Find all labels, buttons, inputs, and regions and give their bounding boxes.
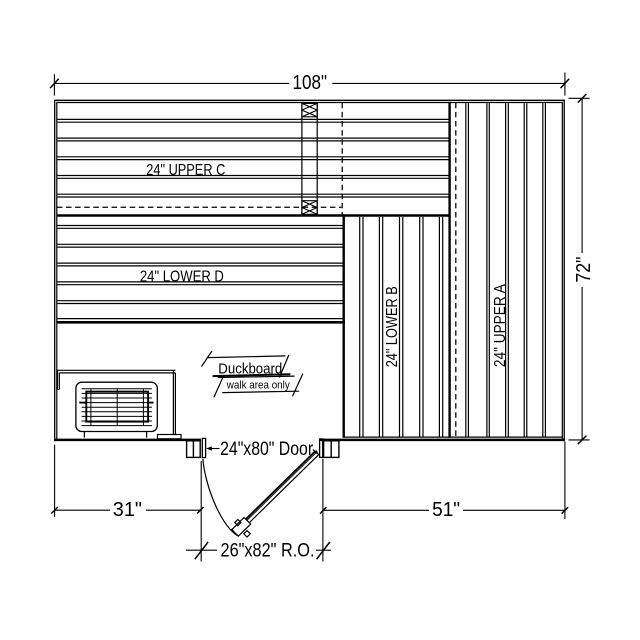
svg-text:72": 72" xyxy=(573,257,595,283)
svg-text:108": 108" xyxy=(293,72,328,94)
svg-text:26"x82" R.O.: 26"x82" R.O. xyxy=(221,540,315,561)
svg-text:24" UPPER C: 24" UPPER C xyxy=(146,162,225,179)
svg-text:24"x80" Door: 24"x80" Door xyxy=(220,439,314,460)
svg-text:Duckboard: Duckboard xyxy=(218,361,282,378)
svg-text:24" LOWER D: 24" LOWER D xyxy=(140,269,224,286)
svg-text:walk area only: walk area only xyxy=(226,380,290,392)
svg-text:31": 31" xyxy=(113,499,142,521)
svg-text:24" LOWER B: 24" LOWER B xyxy=(384,286,401,367)
svg-text:24" UPPER A: 24" UPPER A xyxy=(492,284,509,367)
svg-text:51": 51" xyxy=(432,499,460,521)
